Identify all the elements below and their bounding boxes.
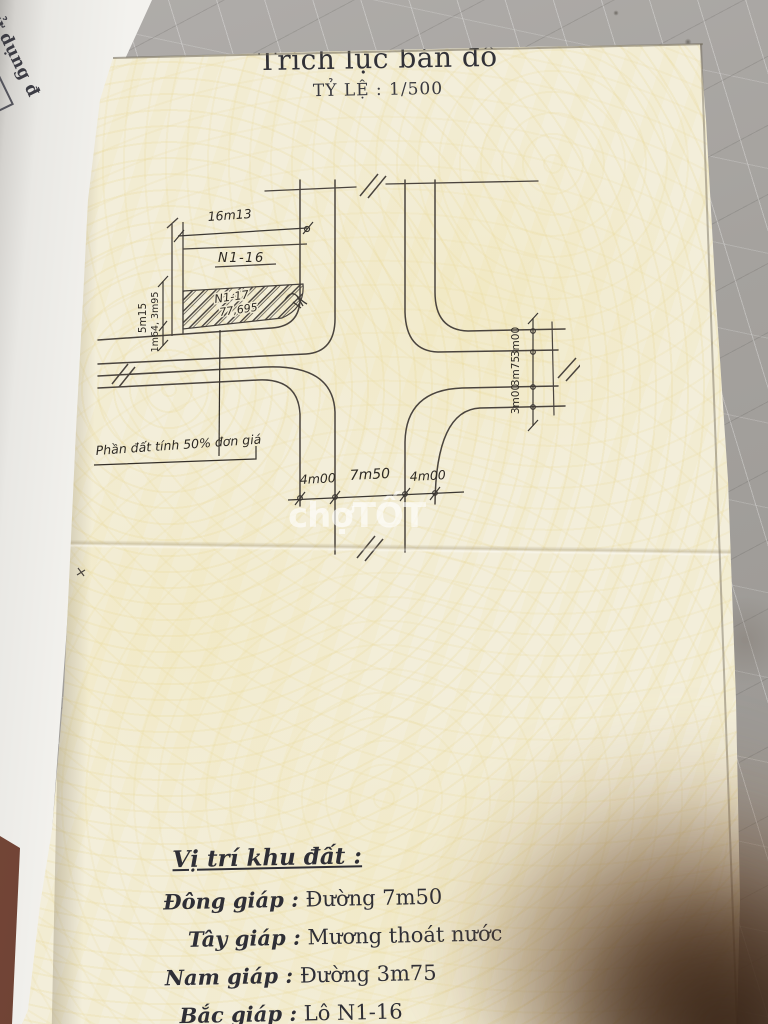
dim-label-3m00-north: 3m00 xyxy=(510,327,522,357)
location-label: Bắc giáp : xyxy=(179,1001,297,1024)
photo-of-map-document: ền sử dụng đ nhận của cơ q ó thẩm quyền … xyxy=(0,0,768,1024)
dimension-east xyxy=(528,313,538,431)
lot-label-n1-16: N1-16 xyxy=(218,251,265,266)
dim-label-5m15: 5m15 xyxy=(137,303,149,333)
note-50-percent: Phần đất tính 50% đơn giá xyxy=(95,431,262,458)
ink-blemish xyxy=(77,568,85,576)
dim-label-west-inner: 1m64, 3m95 xyxy=(150,292,161,353)
side-text-line: ền sử dụng đ xyxy=(0,0,94,203)
dim-label-7m50: 7m50 xyxy=(349,466,390,484)
map-scale-label: TỶ LỆ : 1/500 xyxy=(288,78,468,101)
location-value: Lô N1-16 xyxy=(303,999,402,1024)
dim-label-3m75: 3m75 xyxy=(510,356,522,386)
location-label: Nam giáp : xyxy=(165,963,294,991)
dim-label-4m00-east: 4m00 xyxy=(409,467,446,484)
dim-label-3m00-south: 3m00 xyxy=(510,384,522,414)
location-label: Đông giáp : xyxy=(163,887,299,915)
chotot-watermark: chợTỐT xyxy=(288,496,425,536)
dimension-top xyxy=(174,222,313,242)
dim-label-16m13: 16m13 xyxy=(207,206,252,224)
dim-label-4m00-west: 4m00 xyxy=(299,470,336,487)
underlying-page-text: ền sử dụng đ nhận của cơ q ó thẩm quyền xyxy=(0,0,94,232)
location-label: Tây giáp : xyxy=(188,925,301,952)
